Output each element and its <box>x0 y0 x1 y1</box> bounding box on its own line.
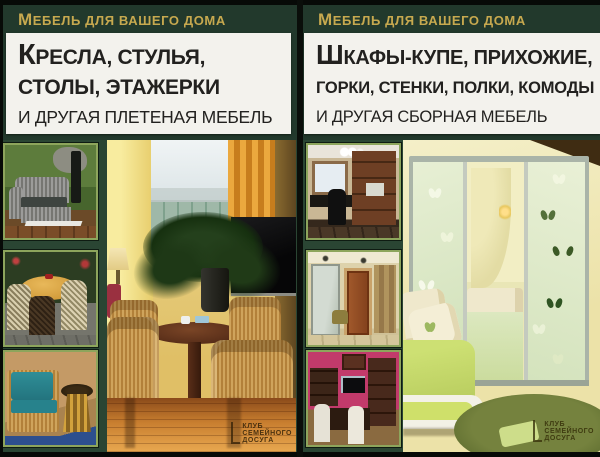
back-cushion-teal <box>11 372 53 400</box>
publisher-logo-text: Клуб семейного досуга <box>544 421 594 442</box>
table-lamp-stem <box>116 270 120 284</box>
stone-floor <box>5 335 96 345</box>
title-panel: Кресла, стулья, столы, этажерки и другая… <box>6 33 291 134</box>
dark-tile-floor <box>308 227 399 238</box>
plant-pot <box>201 268 229 312</box>
butterfly-decal <box>541 210 555 220</box>
table-lamp-shade <box>107 248 129 270</box>
butterfly-decal-large <box>553 246 573 262</box>
seat-cushion-teal <box>11 400 57 413</box>
wall-cabinet-left <box>310 368 338 406</box>
publisher-logo: Клуб семейного досуга <box>533 420 594 442</box>
flowers-left <box>11 256 21 266</box>
publisher-logo: Клуб семейного досуга <box>231 422 292 444</box>
butterfly-decal <box>553 354 563 364</box>
side-table-legs <box>63 394 91 432</box>
wardrobe-door-right-glass <box>527 162 585 380</box>
butterfly-decal <box>533 324 545 334</box>
title-panel: Шкафы-купе, прихожие, горки, стенки, пол… <box>304 33 600 134</box>
thumbnail-patio-table-chairs <box>3 250 98 347</box>
mirror-reflection-sconce <box>499 204 511 220</box>
table-cup <box>181 316 190 324</box>
book-cover-wardrobe-furniture[interactable]: Мебель для вашего дома Шкафы-купе, прихо… <box>303 5 600 452</box>
spotlight-2 <box>360 257 367 264</box>
bistro-chair-right <box>61 280 87 330</box>
book-cover-wicker-furniture[interactable]: Мебель для вашего дома Кресла, стулья, с… <box>3 5 297 452</box>
thumbnail-pink-dining-room <box>306 350 401 447</box>
bistro-chair-front <box>29 296 55 340</box>
thumbnail-teal-cushion-sofa <box>3 350 98 447</box>
floor-reflection-left <box>125 398 135 448</box>
photo-butterfly-wardrobe-room: Клуб семейного досуга <box>403 140 600 452</box>
series-title: Мебель для вашего дома <box>3 5 297 30</box>
photo-wicker-dining-room: Клуб семейного досуга <box>107 140 296 452</box>
flowers-right <box>79 258 91 270</box>
table-blue-box <box>195 316 209 323</box>
bistro-chair-left <box>7 284 31 330</box>
mirror-reflection-bed <box>467 312 523 380</box>
title-line-2: горки, стенки, полки, комоды <box>304 73 600 103</box>
office-chair <box>328 189 346 225</box>
spotlight-1 <box>322 255 329 262</box>
ottoman <box>332 310 348 324</box>
window-roman-shade <box>151 140 233 202</box>
butterfly-decal <box>429 188 441 198</box>
thumbnail-home-office <box>306 143 401 240</box>
shelf-tv <box>366 183 384 196</box>
thumbnail-hallway <box>306 250 401 347</box>
butterfly-decal <box>547 298 562 308</box>
door-divider-2 <box>524 162 528 380</box>
pillow-butterfly-print <box>425 322 435 332</box>
thumbnail-garden-wicker-sofa <box>3 143 98 240</box>
title-line-1: Кресла, стулья, <box>6 40 291 73</box>
title-line-1: Шкафы-купе, прихожие, <box>304 40 600 73</box>
picture-frame <box>342 354 366 370</box>
photo-collage: Клуб семейного досуга <box>3 140 297 452</box>
blue-floor <box>5 436 96 445</box>
title-line-3: и другая плетеная мебель <box>6 103 291 132</box>
two-book-covers: Мебель для вашего дома Кресла, стулья, с… <box>0 0 600 457</box>
butterfly-decal <box>441 232 453 242</box>
deck-planks <box>5 226 96 238</box>
publisher-logo-text: Клуб семейного досуга <box>242 423 292 444</box>
wooden-door <box>344 268 372 338</box>
publisher-logo-mark <box>231 422 240 444</box>
wall-tv <box>341 376 365 393</box>
title-line-3: и другая сборная мебель <box>304 103 600 132</box>
mirror-panel-right <box>374 265 396 333</box>
beige-floor <box>308 335 399 345</box>
publisher-logo-mark <box>533 420 542 442</box>
white-chair-left <box>314 404 330 442</box>
mirror-wardrobe <box>311 264 340 336</box>
butterfly-decal <box>553 174 565 184</box>
display-cabinet-right <box>368 358 396 426</box>
garden-rocks <box>53 147 87 173</box>
garden-lamp-post <box>71 151 81 203</box>
photo-collage: Клуб семейного досуга <box>303 140 600 452</box>
series-title: Мебель для вашего дома <box>303 5 600 30</box>
table-pedestal <box>188 342 201 402</box>
white-chair-right <box>348 406 364 444</box>
table-red-item <box>45 274 53 279</box>
title-line-2: столы, этажерки <box>6 73 291 103</box>
bed-green-blanket <box>403 340 475 402</box>
